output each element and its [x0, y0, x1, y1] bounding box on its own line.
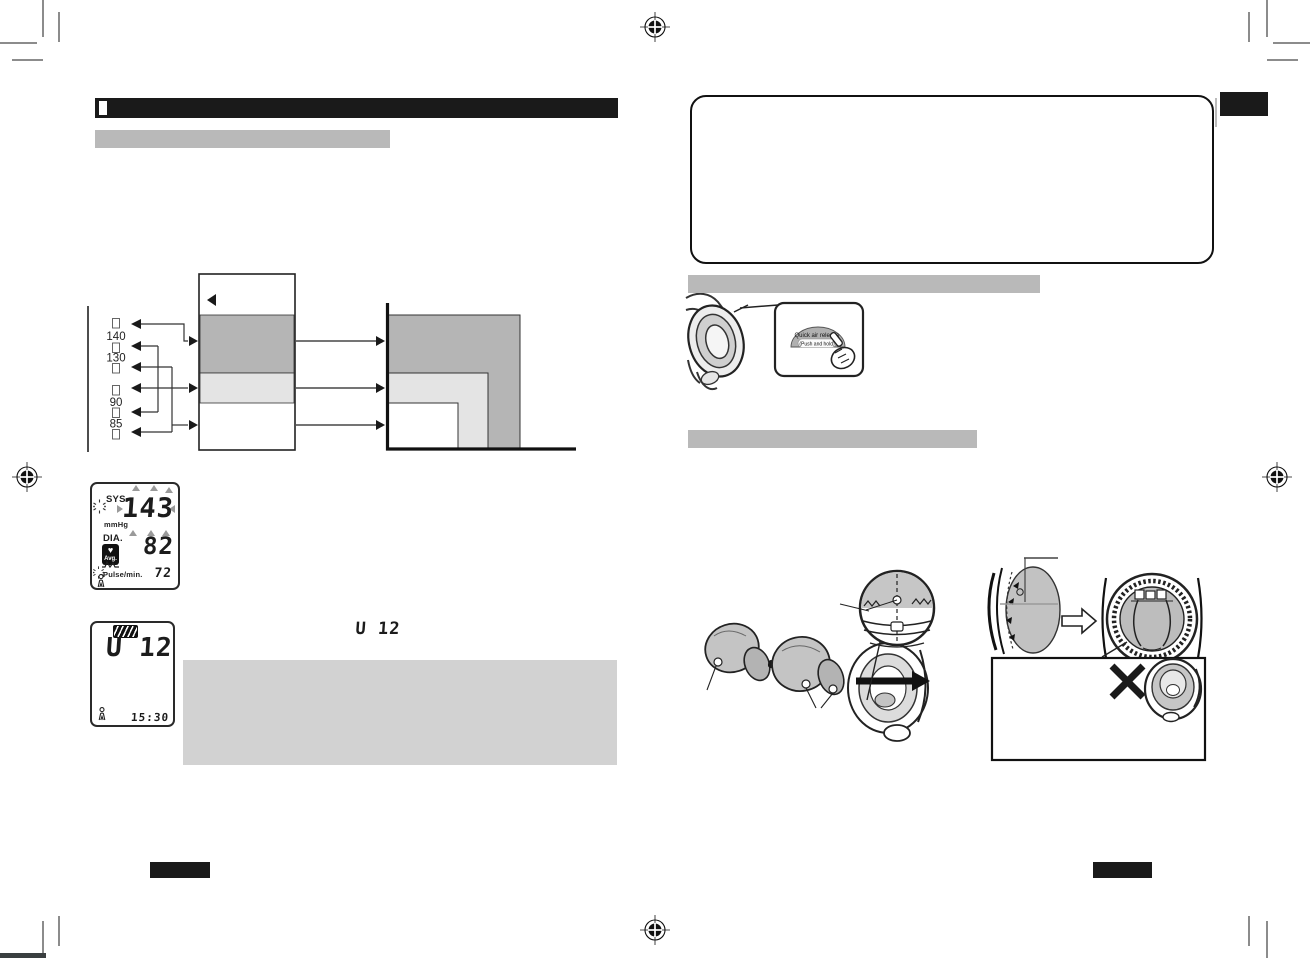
body-movement-icon — [96, 707, 108, 721]
map-arrows — [296, 341, 376, 425]
unit-label: mmHg — [104, 520, 128, 529]
memory-value: U 12 — [105, 633, 169, 663]
threshold-85: 85 — [110, 419, 123, 431]
lcd-display-memory: U 12 15:30 — [90, 621, 175, 727]
registration-mark — [640, 915, 670, 945]
threshold-arrows — [131, 319, 141, 437]
dia-label: DIA. — [103, 533, 123, 544]
edge-tab — [1220, 92, 1268, 116]
pulse-value: 72 — [143, 566, 172, 581]
classification-column — [199, 274, 295, 450]
registration-mark — [1262, 462, 1292, 492]
page-number-tab — [150, 862, 210, 878]
info-rounded-box — [690, 95, 1214, 264]
dia-value: 82 — [135, 532, 175, 560]
threshold-90: 90 — [110, 397, 123, 409]
cuff-rolling-illustration — [699, 571, 934, 741]
page-number-tab — [1093, 862, 1152, 878]
nested-zone-chart — [386, 303, 576, 451]
heart-icon: ♥ — [102, 546, 119, 555]
body-movement-icon — [95, 574, 107, 588]
quick-air-release-illustration: Quick air release (Push and hold) — [681, 294, 863, 389]
sys-value: 143 — [121, 493, 175, 524]
threshold-140: 140 — [106, 331, 125, 343]
registration-mark — [12, 462, 42, 492]
cuff-orientation-illustration — [989, 558, 1205, 760]
threshold-130: 130 — [106, 353, 125, 365]
pulse-label: Pulse/min. — [103, 570, 143, 579]
note-gray-box — [183, 660, 617, 765]
section-subheader-bar — [688, 430, 977, 448]
connector-lines — [141, 324, 188, 432]
memory-time: 15:30 — [130, 711, 169, 724]
quick-air-release-sublabel: (Push and hold) — [799, 342, 835, 348]
in-arrows — [189, 336, 198, 430]
section-header-bar — [95, 98, 618, 118]
print-artifact-strip — [0, 953, 46, 958]
section-subheader-bar — [688, 275, 1040, 293]
section-header-marker — [99, 101, 107, 115]
registration-mark — [640, 12, 670, 42]
bp-classification-chart: 140 130 90 85 — [88, 274, 576, 452]
flashing-icon — [92, 499, 107, 514]
section-subheader-bar — [95, 130, 390, 148]
inline-lcd-value: U 12 — [351, 619, 404, 639]
direction-arrow — [1062, 609, 1096, 633]
manual-page: 140 130 90 85 — [0, 0, 1310, 958]
lcd-display-measurement: SYS. 143 mmHg DIA. ♥ Avg. 82 Pulse/min. … — [90, 482, 180, 590]
